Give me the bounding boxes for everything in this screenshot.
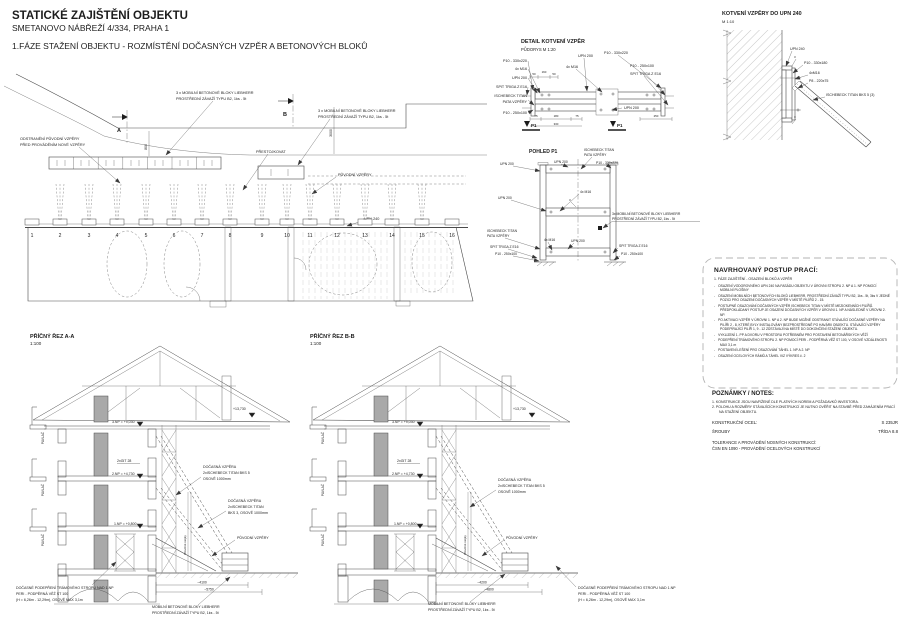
procedure-item: PODEPŘENÍ TRÁMOVÉHO STROPU 2. NP POMOCÍ …	[714, 338, 890, 346]
kotveni-detail: KOTVENÍ VZPĚRY DO UPN 240 M 1:10 UPN 240…	[722, 9, 874, 147]
sheet-title: STATICKÉ ZAJIŠTĚNÍ OBJEKTU	[12, 9, 188, 22]
notes-title: POZNÁMKY / NOTES:	[712, 391, 898, 397]
section-a-lvl-top: +13,730	[233, 407, 246, 411]
section-b-vzpera1-1: DOČASNÁ VZPĚRA	[498, 477, 532, 482]
procedure-item: VYKLIZENÍ 1. PP A DVORU V PROSTORU POTŘE…	[714, 333, 890, 337]
grid-number: 7	[201, 233, 204, 239]
plan-label-prestojkovat: PŘESTOJKOVAT	[256, 149, 286, 154]
section-a-lvl-2np: 2.NP = +4,730	[112, 472, 135, 476]
detail-dim-160: 160	[542, 70, 547, 74]
procedure-item: POSTUPNÉ OSAZOVÁNÍ DOČASNÝCH VZPĚR ISCHE…	[714, 304, 890, 317]
steel-label: KONSTRUKČNÍ OCEL:	[712, 420, 757, 425]
section-b-bloky-1: MOBILNÍ BETONOVÉ BLOKY LIEBHERR	[428, 601, 496, 606]
procedure-item: POSTAVENÍ LEŠENÍ PRO OSAZOVÁNÍ TÁHEL 1. …	[714, 348, 890, 352]
grid-number: 5	[145, 233, 148, 239]
kotveni-label-p10: P10 - 330x180	[804, 61, 827, 65]
section-b-dim1: ~4200	[477, 581, 487, 585]
procedure-item: OSAZENÍ VODOROVNÉHO UPN 240 NA FASÁDU OB…	[714, 284, 890, 292]
section-a-dim2: ~5750	[204, 588, 214, 592]
section-b-vzpera1-3: OSOVĚ 1000mm	[498, 489, 526, 494]
pohled-right-p10: P10 - 250x100	[621, 252, 643, 256]
section-b-pavlac-2: PAVLAČ	[320, 483, 325, 496]
detail-right-p10: P10 - 250x100	[630, 64, 654, 68]
section-a-vzpera1-3: OSOVĚ 1000mm	[203, 476, 231, 481]
detail-label-spit-triga: SPIT TRIGA Z E16	[496, 85, 527, 89]
note-item: 1. KONSTRUKCE JSOU NAVRŽENÉ DLE PLATNÝCH…	[712, 400, 898, 405]
detail-dim-75b: 75	[575, 114, 579, 118]
pohled-top-ischebeck-2: PATA VZPĚRY	[584, 152, 607, 157]
section-b-podepreni-2: PERI - PODPĚRNÁ VĚŽ ST 100	[578, 591, 630, 596]
concrete-block-row	[49, 157, 221, 169]
detail-subtitle: PŮDORYS M 1:20	[521, 47, 556, 52]
section-b-vzpera1-2: 2xISCHEBECK TITAN BKS 5	[498, 484, 545, 488]
detail-assembly	[522, 88, 674, 116]
plan-label-blocks-top-2: PROSTŘEDNÍ ZÁVAŽÍ TYPU B2, 1ks - 5t	[176, 96, 247, 101]
pohled-top-p10: P10 - 330x220	[596, 161, 618, 165]
detail-dim-50a: 50	[532, 72, 536, 76]
pohled-left-spit: SPIT TRIGA Z E16	[490, 245, 519, 249]
section-b-title: PŘÍČNÝ ŘEZ B-B	[310, 332, 355, 340]
section-a-podepreni-1: DOČASNÉ PODEPŘENÍ TRÁMOVÉHO STROPU NAD 1…	[16, 585, 114, 590]
kotveni-scale: M 1:10	[722, 19, 735, 24]
tolerance-line-2: ČSN EN 1090 - PROVÁDĚNÍ OCELOVÝCH KONSTR…	[712, 446, 898, 452]
section-b-lvl-1np: 1.NP = +0,800	[394, 522, 417, 526]
section-a-title: PŘÍČNÝ ŘEZ A-A	[30, 332, 74, 340]
detail-dim-50b: 50	[552, 72, 556, 76]
kotveni-label-4xm16: 4xM16	[809, 71, 820, 75]
section-a-bloky-2: PROSTŘEDNÍ ZÁVAŽÍ TYPU B2, 1ks - 5t	[152, 610, 219, 615]
section-a-vzpera1-1: DOČASNÁ VZPĚRA	[203, 464, 237, 469]
section-a-pavlac-2: PAVLAČ	[40, 483, 45, 496]
procedure-item: OSAZENÍ MOBILNÍCH BETONOVÝCH BLOKŮ LIEBH…	[714, 294, 890, 302]
pohled-p1: POHLED P1 ISCHEBECK TITAN PATA VZPĚRY UP…	[487, 148, 700, 266]
section-a-dim1: ~4100	[197, 581, 207, 585]
kotveni-wall	[723, 30, 782, 140]
pohled-mid-4xm16: 4x M16	[580, 190, 591, 194]
plan-label-remove-2: PŘED PROVÁDĚNÍM NOVÉ VZPĚRY	[20, 142, 86, 147]
pohled-right-spit: SPIT TRIGA Z E16	[619, 244, 648, 248]
section-b-pavlac-1: PAVLAČ	[320, 431, 325, 444]
detail-dim-250: 250	[654, 114, 659, 118]
bolts-label: ŠROUBY	[712, 429, 730, 434]
pohled-right-blocks-2: PROSTŘEDNÍ ZÁVAŽÍ TYPU B2, 1ks - 5t	[612, 216, 675, 221]
building-plan	[28, 227, 473, 307]
grid-number: 2	[59, 233, 62, 239]
section-a-vzpera1-2: 2xISCHEBECK TITAN BKS 5	[203, 471, 250, 475]
work-procedure-intro: 1. FÁZE ZAJIŠTĚNÍ - OSAZENÍ BLOKŮ A VZPĚ…	[714, 277, 890, 281]
note-item: 2. POLOHU A ROZMĚRY STÁVAJÍCÍCH KONSTRUK…	[712, 405, 898, 414]
plan-dim-800: 800	[144, 144, 148, 150]
section-a-vzpera2-3: BKS 3, OSOVĚ 1000mm	[228, 510, 268, 515]
detail-label-upn200: UPN 200	[512, 76, 527, 80]
section-a-vzpera2-2: 2xISCHEBECK TITAN	[228, 505, 264, 509]
section-a-bloky-1: MOBILNÍ BETONOVÉ BLOKY LIEBHERR	[152, 604, 220, 609]
section-b-lvl-2np: 2.NP = +4,730	[392, 472, 415, 476]
grid-number: 1	[31, 233, 34, 239]
p1-label: P1	[531, 123, 537, 128]
section-b-lvl-top: +13,730	[513, 407, 526, 411]
pohled-mid-upn200: UPN 200	[571, 239, 585, 243]
kotveni-label-p8: P8 - 220x75	[809, 79, 828, 83]
section-a-scale: 1:100	[30, 341, 42, 346]
section-b-linework	[310, 346, 578, 604]
detail-label-ischebeck-1: ISCHEBECK TITAN	[494, 94, 527, 98]
section-a-pavlac-3: PAVLAČ	[40, 533, 45, 546]
pohled-left-upn200-2: UPN 200	[498, 196, 512, 200]
section-b-podepreni-3: (H = 6,26m - 12,29m), OSOVĚ MAX 3,1m	[578, 597, 645, 602]
plan-label-blocks-mid-2: PROSTŘEDNÍ ZÁVAŽÍ TYPU B2, 1ks - 5t	[318, 114, 389, 119]
plan-label-puvodni-vzpery: PŮVODNÍ VZPĚRY	[338, 172, 372, 177]
grid-number: 9	[261, 233, 264, 239]
general-notes: POZNÁMKY / NOTES: 1. KONSTRUKCE JSOU NAV…	[712, 391, 898, 452]
detail-right-spit: SPIT TRIGA Z E16	[630, 72, 661, 76]
drawing-sheet: STATICKÉ ZAJIŠTĚNÍ OBJEKTU SMETANOVO NÁB…	[0, 0, 900, 627]
detail-mid-4xm16: 4x M16	[566, 65, 578, 69]
prestojkovat-block	[258, 166, 304, 179]
section-a-labels: PŘÍČNÝ ŘEZ A-A 1:100 +13,730 3.NP = +9,0…	[16, 332, 269, 615]
kotveni-label-upn240: UPN 240	[790, 47, 805, 51]
section-a-wood-post-label: Dřevěné stojky	[183, 535, 187, 555]
detail-dim-180: 180	[554, 114, 559, 118]
pohled-left-p10: P10 - 250x100	[495, 252, 517, 256]
sheet-address: SMETANOVO NÁBŘEŽÍ 4/334, PRAHA 1	[12, 23, 169, 33]
plan-label-blocks-top-1: 3 x MOBILNÍ BETONOVÉ BLOKY LIEBHERR	[176, 90, 254, 95]
steel-value: S 235JR	[882, 420, 898, 425]
p1-marker-right: P1	[608, 121, 626, 130]
work-procedure-notes: NAVRHOVANÝ POSTUP PRACÍ: 1. FÁZE ZAJIŠTĚ…	[714, 267, 890, 360]
detail-label-4xm16: 4x M16	[515, 67, 527, 71]
detail-dim-330: 330	[554, 122, 559, 126]
existing-strut-clusters	[56, 184, 426, 220]
pohled-left-4xm16: 4x M16	[544, 238, 555, 242]
section-marker-b-letter: B	[283, 112, 287, 118]
section-a-podepreni-2: PERI - PODPĚRNÁ VĚŽ ST 100	[16, 591, 68, 596]
pohled-left-ischebeck-2: PATA VZPĚRY	[487, 233, 510, 238]
p1-marker-left: P1	[522, 121, 540, 130]
pohled-top-upn200: UPN 200	[554, 160, 568, 164]
section-a-puvodni: PŮVODNÍ VZPĚRY	[237, 535, 269, 540]
grid-number: 3	[88, 233, 91, 239]
pohled-right-blocks-1: 3x MOBILNÍ BETONOVÉ BLOKY LIEBHERR	[612, 211, 681, 216]
plan-label-remove-1: ODSTRANĚNÍ PŮVODNÍ VZPĚRY	[20, 136, 80, 141]
procedure-item: PO AKTIVACI VZPĚR V ÚROVNI 1. NP A 2. NP…	[714, 318, 890, 331]
kotveni-weld-3a: 3	[794, 55, 796, 59]
pohled-top-ischebeck-1: ISCHEBECK TITAN	[584, 148, 615, 152]
section-b-pavlac-3: PAVLAČ	[320, 533, 325, 546]
pohled-left-ischebeck-1: ISCHEBECK TITAN	[487, 229, 518, 233]
detail-kotveni-plan: DETAIL KOTVENÍ VZPĚR PŮDORYS M 1:20 P10 …	[494, 37, 674, 130]
detail-dim-75a: 75	[534, 114, 538, 118]
procedure-item: OSAZENÍ OCELOVÝCH RÁMŮ A TÁHEL VIZ VÝKRE…	[714, 354, 890, 358]
section-b-puvodni: PŮVODNÍ VZPĚRY	[506, 535, 538, 540]
section-a-lvl-3np: 3.NP = +9,030	[112, 420, 135, 424]
title-block: STATICKÉ ZAJIŠTĚNÍ OBJEKTU SMETANOVO NÁB…	[12, 9, 367, 51]
section-b-lvl-3np: 3.NP = +9,030	[392, 420, 415, 424]
plan-dimensions	[149, 107, 334, 156]
section-b-wood-post-label: Dřevěné stojky	[463, 535, 467, 555]
section-a-linework	[30, 346, 298, 604]
section-marker-a-letter: A	[117, 128, 121, 134]
detail-top-p10: P10 - 330x220	[604, 51, 628, 55]
kotveni-title: KOTVENÍ VZPĚRY DO UPN 240	[722, 9, 802, 17]
detail-label-p10-250x100: P10 - 250x100	[503, 111, 527, 115]
work-procedure-title: NAVRHOVANÝ POSTUP PRACÍ:	[714, 267, 890, 274]
section-a-git-label: 2xGIT 28	[117, 459, 131, 463]
kotveni-label-ischebeck: ISCHEBECK TITAN BKS 5 (3)	[826, 93, 874, 97]
sheet-phase: 1.FÁZE STAŽENÍ OBJEKTU - ROZMÍSTĚNÍ DOČA…	[12, 40, 367, 51]
plan-view: 800 3000 ODSTRANĚNÍ PŮVODNÍ VZPĚRY PŘED …	[4, 74, 487, 307]
pohled-title: POHLED P1	[529, 149, 558, 155]
grid-number: 4	[116, 233, 119, 239]
plan-label-blocks-mid-1: 3 x MOBILNÍ BETONOVÉ BLOKY LIEBHERR	[318, 108, 396, 113]
section-b-labels: PŘÍČNÝ ŘEZ B-B 1:100 +13,730 3.NP = +9,0…	[310, 332, 676, 612]
section-b-scale: 1:100	[310, 341, 322, 346]
plan-dim-3000: 3000	[329, 129, 333, 137]
bolts-value: TŘÍDA 8.8	[878, 429, 898, 434]
p1-label: P1	[617, 123, 623, 128]
section-marker-b: B	[278, 94, 294, 128]
detail-title: DETAIL KOTVENÍ VZPĚR	[521, 37, 585, 45]
detail-right-upn200: UPN 200	[624, 106, 639, 110]
section-b-git-label: 2xGIT 28	[397, 459, 411, 463]
section-marker-a: A	[112, 110, 128, 143]
section-a-podepreni-3: (H = 6,26m - 12,29m), OSOVĚ MAX 3,1m	[16, 597, 83, 602]
section-a-vzpera2-1: DOČASNÁ VZPĚRA	[228, 498, 262, 503]
detail-top-upn200: UPN 200	[578, 54, 593, 58]
detail-label-ischebeck-2: PATA VZPĚRY	[503, 99, 528, 104]
kotveni-weld-3b: 3	[794, 115, 796, 119]
section-b-podepreni-1: DOČASNÉ PODEPŘENÍ TRÁMOVÉHO STROPU NAD 1…	[578, 585, 676, 590]
section-b-bloky-2: PROSTŘEDNÍ ZÁVAŽÍ TYPU B2, 1ks - 5t	[428, 607, 495, 612]
pohled-left-upn200: UPN 200	[500, 162, 514, 166]
grid-number: 10	[284, 233, 290, 239]
detail-label-p10-330x220: P10 - 330x220	[503, 59, 527, 63]
section-a-lvl-1np: 1.NP = +0,800	[114, 522, 137, 526]
section-a-pavlac-1: PAVLAČ	[40, 431, 45, 444]
grid-number: 6	[173, 233, 176, 239]
